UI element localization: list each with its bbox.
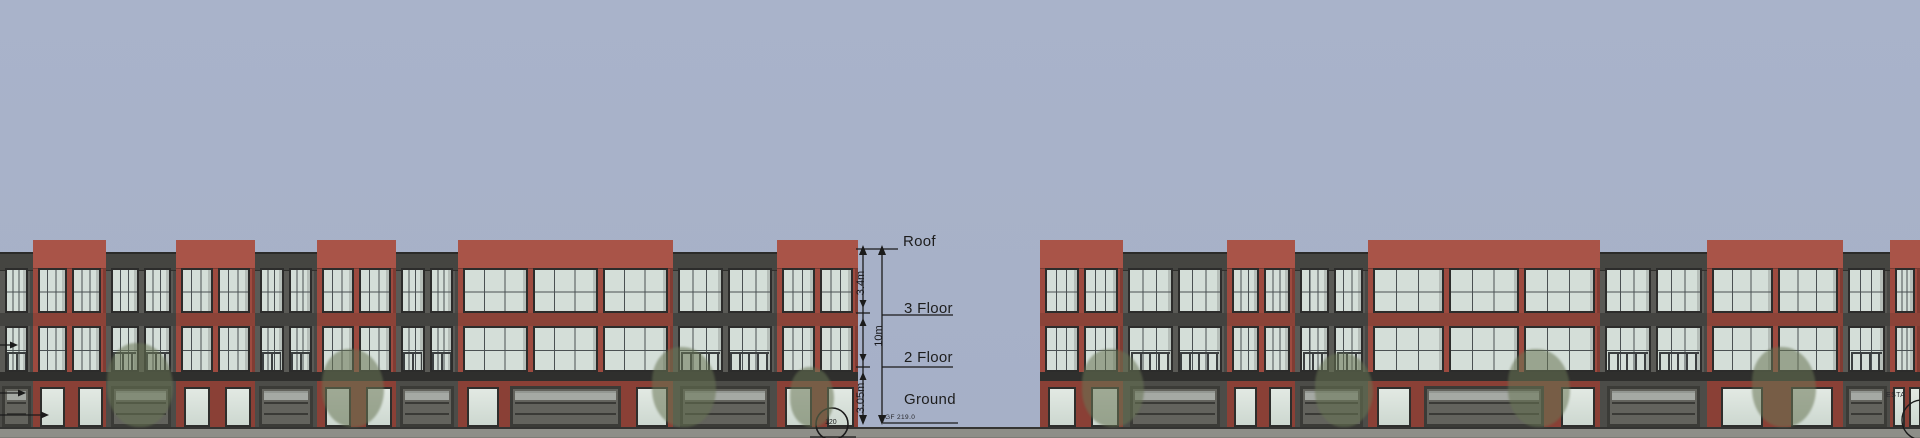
window (72, 268, 101, 313)
parapet (317, 240, 396, 269)
window (181, 268, 213, 313)
elevation-drawing: Roof 3 Floor 2 Floor Ground 3.4m 10m 3.0… (0, 0, 1920, 438)
building-unit-red (33, 240, 106, 427)
window-row (458, 268, 673, 313)
window (5, 268, 28, 313)
window-row (176, 326, 255, 372)
window-row (255, 268, 317, 313)
window (289, 268, 313, 313)
fascia-band (255, 372, 317, 381)
window (401, 268, 425, 313)
entry-door (1377, 387, 1411, 427)
window (1300, 268, 1329, 313)
level-label-floor2: 2 Floor (904, 349, 953, 366)
dim-text-roof-to-3f: 3.4m (855, 263, 867, 303)
window (1712, 268, 1773, 313)
window (218, 268, 250, 313)
window (1264, 268, 1291, 313)
balcony-window (728, 326, 773, 372)
window (260, 268, 284, 313)
window-row (1843, 268, 1890, 313)
window-row (1123, 326, 1227, 372)
parapet (1040, 240, 1123, 269)
window (1848, 268, 1885, 313)
window (1045, 326, 1079, 372)
spandrel-band (396, 313, 458, 326)
ground-floor (255, 381, 317, 427)
ground-floor (176, 381, 255, 427)
spandrel-band (1707, 313, 1843, 326)
window-row (1707, 268, 1843, 313)
window (782, 268, 815, 313)
window-row (396, 326, 458, 372)
window (1045, 268, 1079, 313)
entry-door (1234, 387, 1257, 427)
window-row (1227, 326, 1295, 372)
window (1264, 326, 1291, 372)
window (218, 326, 250, 372)
window (533, 268, 598, 313)
window (322, 268, 354, 313)
building-unit-gray (396, 252, 458, 427)
window-row (106, 268, 176, 313)
fascia-band (1890, 372, 1920, 381)
window-row (777, 268, 858, 313)
parapet (777, 240, 858, 269)
window-row (1368, 326, 1600, 372)
window (1449, 326, 1520, 372)
window (820, 326, 853, 372)
entry-door (184, 387, 210, 427)
spandrel-band (1890, 313, 1920, 326)
dim-arrow-up-icon (878, 245, 886, 255)
window (678, 268, 723, 313)
window (1895, 268, 1915, 313)
window-row (1295, 268, 1368, 313)
entry-door (467, 387, 499, 427)
ground-elevation-note: GF 219.0 (885, 414, 915, 421)
entry-door (1048, 387, 1075, 427)
street-tree (1082, 349, 1144, 427)
entry-door (1909, 387, 1920, 427)
window (728, 268, 773, 313)
ground-floor (0, 381, 33, 427)
window (463, 268, 528, 313)
window (533, 326, 598, 372)
fascia-band (33, 372, 106, 381)
fascia-band (1843, 372, 1890, 381)
window-row (1600, 326, 1707, 372)
garage-door (1846, 386, 1886, 427)
window-row (673, 268, 777, 313)
fascia-band (396, 372, 458, 381)
window (111, 268, 139, 313)
building-unit-gray (255, 252, 317, 427)
window (1373, 326, 1444, 372)
spandrel-band (1040, 313, 1123, 326)
level-label-ground: Ground (904, 391, 956, 408)
spandrel-band (33, 313, 106, 326)
sidewalk-ground-band (0, 427, 1920, 438)
fascia-band (176, 372, 255, 381)
spandrel-band (317, 313, 396, 326)
dim-arrow-up-icon (859, 245, 867, 255)
garage-door (510, 386, 622, 427)
window (1656, 268, 1702, 313)
spandrel-band (1600, 313, 1707, 326)
window-row (33, 268, 106, 313)
balcony-window (5, 326, 28, 372)
window-row (1040, 268, 1123, 313)
window (1605, 268, 1651, 313)
ground-floor (1227, 381, 1295, 427)
entry-door (1269, 387, 1292, 427)
balcony-window (1178, 326, 1223, 372)
street-tree (1508, 349, 1570, 427)
window-row (1890, 268, 1920, 313)
balcony-window (1656, 326, 1702, 372)
window-row (396, 268, 458, 313)
parapet (1707, 240, 1843, 269)
building-unit-gray (1600, 252, 1707, 427)
window (1778, 268, 1839, 313)
balcony-window (1848, 326, 1885, 372)
entry-door (225, 387, 251, 427)
parapet (1890, 240, 1920, 269)
building-unit-red (176, 240, 255, 427)
window-row (33, 326, 106, 372)
window (430, 268, 454, 313)
parapet (176, 240, 255, 269)
street-tree (1752, 347, 1816, 427)
window-row (0, 268, 33, 313)
window (1373, 268, 1444, 313)
garage-door (2, 386, 30, 427)
street-tree (322, 349, 384, 427)
building-unit-gray (0, 252, 33, 427)
building-unit-red (458, 240, 673, 427)
spandrel-band (176, 313, 255, 326)
window (1232, 268, 1259, 313)
window (820, 268, 853, 313)
window (463, 326, 528, 372)
spandrel-band (673, 313, 777, 326)
ground-floor (458, 381, 673, 427)
street-tree (107, 343, 173, 427)
window-row (1123, 268, 1227, 313)
spandrel-band (1368, 313, 1600, 326)
spandrel-band (777, 313, 858, 326)
window (181, 326, 213, 372)
window (1232, 326, 1259, 372)
callout-number: 120 (825, 419, 837, 426)
window-row (176, 268, 255, 313)
window (1524, 268, 1595, 313)
window (38, 268, 67, 313)
parapet (1368, 240, 1600, 269)
spandrel-band (1295, 313, 1368, 326)
window (1895, 326, 1915, 372)
ground-floor (33, 381, 106, 427)
building-unit-gray (1843, 252, 1890, 427)
entry-door (78, 387, 102, 427)
window-row (0, 326, 33, 372)
ground-floor (1600, 381, 1707, 427)
street-tree (652, 347, 716, 427)
window (603, 268, 668, 313)
entry-door (40, 387, 64, 427)
fascia-band (1600, 372, 1707, 381)
dim-text-overall-10m: 10m (873, 316, 885, 356)
garage-door (259, 386, 312, 427)
balcony-window (260, 326, 284, 372)
window-row (317, 268, 396, 313)
window (38, 326, 67, 372)
balcony-window (401, 326, 425, 372)
fascia-band (458, 372, 673, 381)
window (782, 326, 815, 372)
garage-door (1607, 386, 1699, 427)
spandrel-band (106, 313, 176, 326)
parapet (458, 240, 673, 269)
balcony-window (289, 326, 313, 372)
building-unit-red (1227, 240, 1295, 427)
window-row (458, 326, 673, 372)
street-tree (790, 367, 834, 427)
window (1334, 268, 1363, 313)
window (1449, 268, 1520, 313)
window-row (1890, 326, 1920, 372)
spandrel-band (1843, 313, 1890, 326)
fascia-band (1227, 372, 1295, 381)
window-row (255, 326, 317, 372)
spandrel-band (0, 313, 33, 326)
balcony-window (430, 326, 454, 372)
parapet (33, 240, 106, 269)
window (1084, 268, 1118, 313)
street-tree (1315, 353, 1373, 427)
balcony-window (1605, 326, 1651, 372)
level-label-roof: Roof (903, 233, 936, 250)
edge-note: ESTA (1886, 392, 1905, 399)
window-row (1368, 268, 1600, 313)
spandrel-band (1123, 313, 1227, 326)
window-row (1600, 268, 1707, 313)
window (72, 326, 101, 372)
level-label-floor3: 3 Floor (904, 300, 953, 317)
ground-floor (1890, 381, 1920, 427)
fascia-band (0, 372, 33, 381)
garage-door (400, 386, 453, 427)
window (1128, 268, 1173, 313)
window (144, 268, 172, 313)
parapet (1227, 240, 1295, 269)
spandrel-band (458, 313, 673, 326)
spandrel-band (1227, 313, 1295, 326)
ground-floor (396, 381, 458, 427)
window-row (1227, 268, 1295, 313)
window (1178, 268, 1223, 313)
window (359, 268, 391, 313)
dim-text-2f-to-ground: 3.05m (855, 378, 867, 418)
spandrel-band (255, 313, 317, 326)
window-row (1843, 326, 1890, 372)
ground-floor (1843, 381, 1890, 427)
window-row (777, 326, 858, 372)
